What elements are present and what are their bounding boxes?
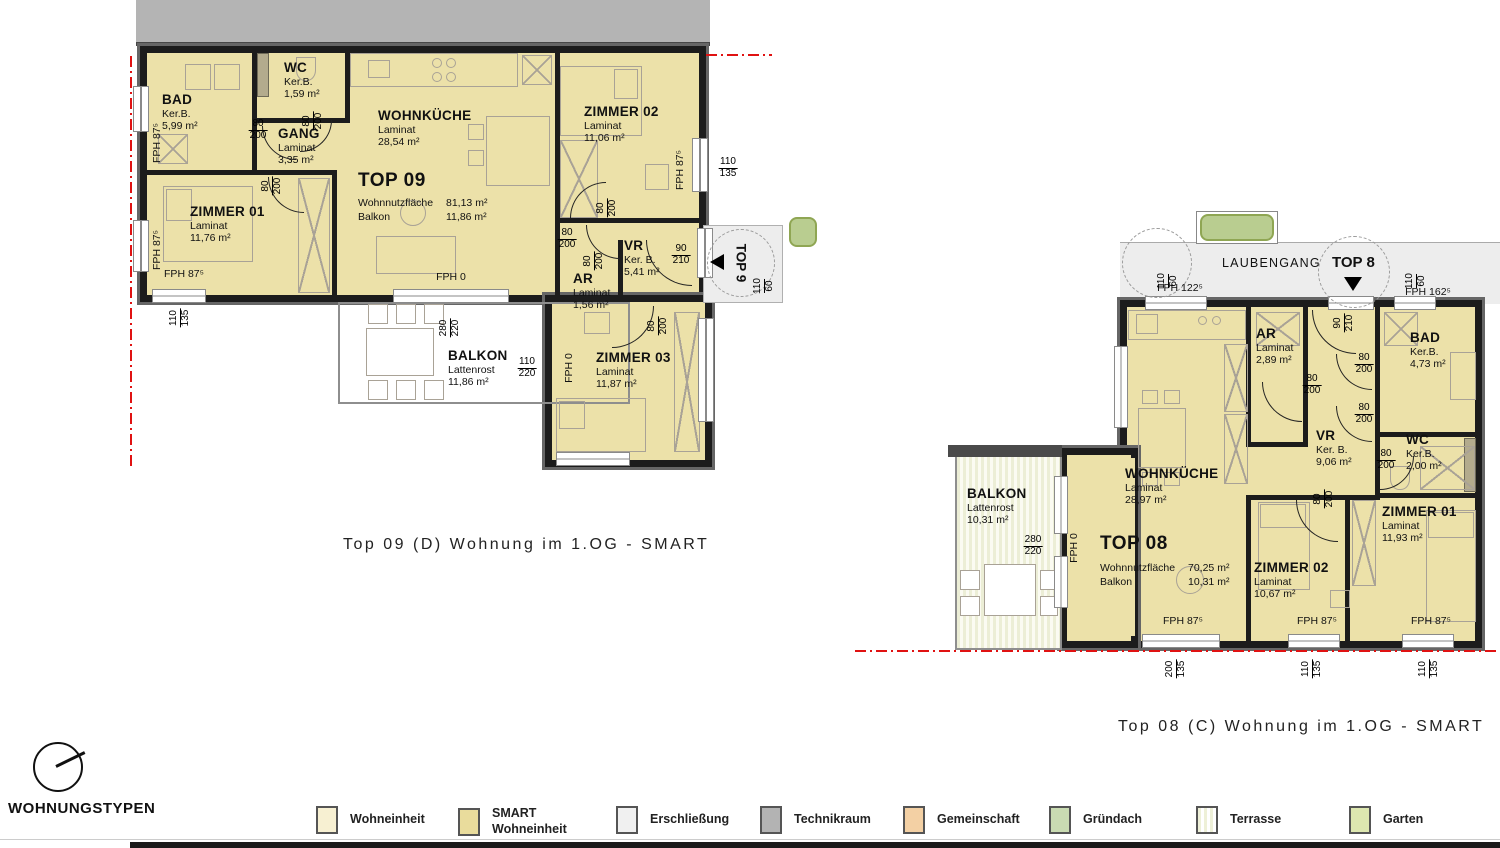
divider <box>0 839 1500 840</box>
legend-label: SMARTWohneinheit <box>492 806 567 837</box>
chair <box>1330 590 1350 608</box>
plumbing-shaft <box>257 53 269 97</box>
pillow <box>166 189 192 221</box>
room-label-vr: VR Ker. B. 9,06 m² <box>1316 428 1352 469</box>
room-label-ar: AR Laminat 1,56 m² <box>573 271 610 312</box>
pillow <box>559 401 585 429</box>
legend-item-technikraum: Technikraum <box>760 806 871 834</box>
wall <box>1375 493 1475 498</box>
legend-swatch <box>1049 806 1071 834</box>
balcony-chair <box>960 596 980 616</box>
legend-item-wohneinheit: Wohneinheit <box>316 806 425 834</box>
room-label-wohnkueche: WOHNKÜCHE Laminat 28,97 m² <box>1125 466 1218 507</box>
window <box>1054 556 1068 608</box>
stove-burner <box>432 72 442 82</box>
side-table <box>584 312 610 334</box>
stove-burner <box>446 72 456 82</box>
unit-label: TOP 08 <box>1100 533 1168 555</box>
entry-label: TOP 8 <box>1332 254 1375 273</box>
boundary-line <box>130 56 132 470</box>
chair <box>468 150 484 166</box>
wall <box>147 170 337 175</box>
chair <box>1142 390 1158 404</box>
window <box>133 220 149 272</box>
washbasin <box>185 64 211 90</box>
fph-label: FPH 87⁵ <box>151 123 163 163</box>
dimension-label: 90210 <box>672 244 691 266</box>
window <box>692 138 708 192</box>
chair <box>1164 390 1180 404</box>
balcony-chair <box>396 380 416 400</box>
balcony-wall-band <box>948 445 1062 457</box>
fridge <box>522 55 552 85</box>
sink <box>1212 316 1221 325</box>
dining-table <box>1138 408 1186 468</box>
legend-swatch <box>760 806 782 834</box>
fph-label: FPH 87⁵ <box>674 150 686 190</box>
room-label-bad: BAD Ker.B. 4,73 m² <box>1410 330 1446 371</box>
unit-stats: Wohnnutzfläche70,25 m² Balkon10,31 m² <box>1100 562 1229 589</box>
entry-arrow-icon <box>1344 277 1362 291</box>
unit-label: TOP 09 <box>358 170 426 192</box>
dimension-label: 80200 <box>249 119 268 141</box>
room-label-balkon: BALKON Lattenrost 11,86 m² <box>448 348 508 389</box>
room-label-ar: AR Laminat 2,89 m² <box>1256 326 1293 367</box>
dimension-label: 80200 <box>1355 353 1374 375</box>
dimension-label: 80200 <box>1377 449 1396 471</box>
dimension-label: 80200 <box>596 199 618 218</box>
room-label-zimmer02: ZIMMER 02 Laminat 11,06 m² <box>584 104 659 145</box>
wall <box>1246 442 1308 447</box>
washbasin <box>214 64 240 90</box>
room-label-gang: GANG Laminat 3,35 m² <box>278 126 320 167</box>
room-label-vr: VR Ker. B. 5,41 m² <box>624 238 660 279</box>
green-roof-planter <box>1200 214 1274 241</box>
legend-heading: WOHNUNGSTYPEN <box>8 800 155 817</box>
balcony-chair <box>424 380 444 400</box>
balcony-chair <box>396 304 416 324</box>
window <box>1402 634 1454 648</box>
legend-swatch <box>1196 806 1218 834</box>
dimension-label: 280220 <box>1024 535 1043 557</box>
stat-row: Balkon11,86 m² <box>358 211 487 225</box>
window <box>556 452 630 466</box>
room-label-wohnkueche: WOHNKÜCHE Laminat 28,54 m² <box>378 108 471 149</box>
stat-row: Balkon10,31 m² <box>1100 576 1229 590</box>
legend-label: Technikraum <box>794 812 871 828</box>
fph-label: FPH 0 <box>563 353 575 383</box>
stove-burner <box>432 58 442 68</box>
washbasin <box>1450 352 1476 400</box>
wardrobe <box>674 312 700 452</box>
legend-item-gruendach: Gründach <box>1049 806 1142 834</box>
legend-item-gemeinschaft: Gemeinschaft <box>903 806 1020 834</box>
room-label-zimmer03: ZIMMER 03 Laminat 11,87 m² <box>596 350 671 391</box>
room-label-wc: WC Ker.B. 1,59 m² <box>284 60 320 101</box>
sink <box>1198 316 1207 325</box>
legend-label: Terrasse <box>1230 812 1281 828</box>
tall-cabinet <box>1224 414 1248 484</box>
window <box>1288 634 1340 648</box>
window <box>1145 296 1207 310</box>
room-label-zimmer01: ZIMMER 01 Laminat 11,93 m² <box>1382 504 1457 545</box>
fph-label: FPH 87⁵ <box>1411 615 1451 627</box>
legend-label: Gründach <box>1083 812 1142 828</box>
wall <box>332 170 337 295</box>
plan-title-top09: Top 09 (D) Wohnung im 1.OG - SMART <box>343 536 709 554</box>
dimension-label: 110135 <box>169 309 191 328</box>
tall-cabinet <box>1224 344 1248 412</box>
room-label-balkon: BALKON Lattenrost 10,31 m² <box>967 486 1027 527</box>
dimension-label: 110220 <box>518 357 537 379</box>
wall <box>1345 495 1350 641</box>
dimension-label: 80200 <box>1313 490 1335 509</box>
green-roof-planter <box>789 217 817 247</box>
dimension-label: 11060 <box>1405 273 1427 289</box>
wardrobe <box>1352 500 1376 586</box>
dimension-label: 80200 <box>1355 403 1374 425</box>
legend-item-erschliessung: Erschließung <box>616 806 729 834</box>
legend-item-terrasse: Terrasse <box>1196 806 1281 834</box>
window <box>1114 346 1128 428</box>
wall <box>1246 495 1251 641</box>
balcony-chair <box>368 380 388 400</box>
fph-label: FPH 87⁵ <box>1163 615 1203 627</box>
dimension-label: 110135 <box>719 157 738 179</box>
legend-swatch <box>316 806 338 834</box>
window <box>1142 634 1220 648</box>
balcony-table <box>984 564 1036 616</box>
balcony-door <box>393 289 509 303</box>
room-label-bad: BAD Ker.B. 5,99 m² <box>162 92 198 133</box>
stat-row: Wohnnutzfläche81,13 m² <box>358 197 487 211</box>
legend-label: Erschließung <box>650 812 729 828</box>
floorplan-sheet: TOP 9 BAD Ker.B. 5,99 m² WC Ker.B. 1,59 … <box>0 0 1500 848</box>
dimension-label: 110135 <box>1301 660 1323 679</box>
room-label-zimmer01: ZIMMER 01 Laminat 11,76 m² <box>190 204 265 245</box>
balcony-table <box>366 328 434 376</box>
window <box>133 86 149 132</box>
legend-swatch <box>458 808 480 836</box>
dimension-label: 11060 <box>753 278 775 294</box>
balcony-door <box>1054 476 1068 534</box>
dimension-label: 80200 <box>583 252 605 271</box>
legend-item-smart-wohneinheit: SMARTWohneinheit <box>458 806 567 837</box>
sofa <box>376 236 456 274</box>
legend-label: Gemeinschaft <box>937 812 1020 828</box>
window <box>1394 296 1436 310</box>
window <box>698 318 714 422</box>
legend-item-garten: Garten <box>1349 806 1423 834</box>
dimension-label: 80200 <box>261 177 283 196</box>
dimension-label: 280220 <box>439 319 461 338</box>
boundary-line <box>855 650 1500 652</box>
balcony <box>955 452 1062 650</box>
stove-burner <box>446 58 456 68</box>
stat-row: Wohnnutzfläche70,25 m² <box>1100 562 1229 576</box>
room-label-zimmer02: ZIMMER 02 Laminat 10,67 m² <box>1254 560 1329 601</box>
dimension-label: 200135 <box>1165 660 1187 679</box>
legend-swatch <box>616 806 638 834</box>
dining-table <box>486 116 550 186</box>
room-label-wc: WC Ker.B. 2,00 m² <box>1406 432 1442 473</box>
entry-label: TOP 9 <box>734 244 749 283</box>
dimension-label: 80200 <box>558 228 577 250</box>
legend-label: Garten <box>1383 812 1423 828</box>
window <box>152 289 206 303</box>
dimension-label: 80200 <box>1303 374 1322 396</box>
legend-swatch <box>1349 806 1371 834</box>
legend-label: Wohneinheit <box>350 812 425 828</box>
fph-label: FPH 87⁵ <box>164 268 204 280</box>
legend-swatch <box>903 806 925 834</box>
entry-arrow-icon <box>710 254 724 270</box>
sheet-border-bar <box>130 842 1500 848</box>
pillow <box>614 69 638 99</box>
laubengang-label: LAUBENGANG <box>1222 256 1321 271</box>
dimension-label: 80200 <box>302 112 324 131</box>
balcony-chair <box>368 304 388 324</box>
stove <box>1136 314 1158 334</box>
sink <box>368 60 390 78</box>
desk <box>645 164 669 190</box>
dimension-label: 110135 <box>1418 660 1440 679</box>
balcony-chair <box>960 570 980 590</box>
fph-label: FPH 0 <box>1068 533 1080 563</box>
fph-label: FPH 87⁵ <box>1297 615 1337 627</box>
wall <box>555 218 699 223</box>
dimension-label: 90210 <box>1333 314 1355 333</box>
unit-stats: Wohnnutzfläche81,13 m² Balkon11,86 m² <box>358 197 487 224</box>
fph-label: FPH 87⁵ <box>151 230 163 270</box>
dimension-label: 11060 <box>1157 273 1179 289</box>
roof-band <box>136 0 710 46</box>
fph-label: FPH 0 <box>436 271 466 283</box>
boundary-line <box>706 54 772 56</box>
plan-title-top08: Top 08 (C) Wohnung im 1.OG - SMART <box>1118 718 1484 736</box>
dimension-label: 80200 <box>647 317 669 336</box>
